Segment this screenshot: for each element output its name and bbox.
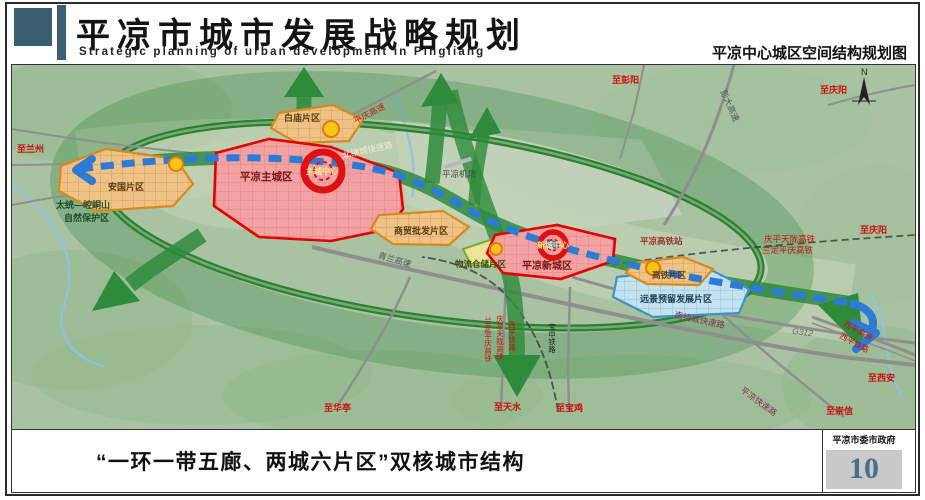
agency-cell: 平凉市委市政府 10 <box>822 430 905 492</box>
map-label: 至天水 <box>494 401 522 412</box>
zone-label-yuanjing: 远景预留发展片区 <box>640 293 712 304</box>
map-label: 至庆阳 <box>860 224 887 235</box>
header-bar-decoration <box>57 5 66 60</box>
map-label: 至西安 <box>868 372 895 383</box>
zone-label-main-city: 平凉主城区 <box>240 170 293 183</box>
zone-label-baimiao: 白庙片区 <box>284 112 320 123</box>
agency-name: 平凉市委市政府 <box>823 433 905 446</box>
zone-label-shangmao: 商贸批发片区 <box>394 225 448 236</box>
planning-map: N 至兰州 太统—崆峒山 自然保护区 安国片区 白庙片区 平凉主城区 主城中心 … <box>11 64 916 430</box>
map-canvas: N 至兰州 太统—崆峒山 自然保护区 安国片区 白庙片区 平凉主城区 主城中心 … <box>12 65 915 429</box>
map-label: 太统—崆峒山 <box>55 199 110 210</box>
map-label: 至华亭 <box>324 402 351 413</box>
map-label: 至兰州 <box>17 143 44 154</box>
page: 平凉市城市发展战略规划 Strategic planning of urban … <box>0 0 925 500</box>
map-label: 至宝鸡 <box>556 402 583 413</box>
map-title: 平凉中心城区空间结构规划图 <box>712 42 907 63</box>
footer-strip: “一环一带五廊、两城六片区”双核城市结构 平凉市委市政府 10 <box>11 430 916 493</box>
map-label: 至彭阳 <box>612 74 639 85</box>
zone-label-new-city: 平凉新城区 <box>522 259 572 272</box>
map-label: 平凉机场 <box>442 169 476 179</box>
map-label: G312 <box>792 326 814 338</box>
core-label-main: 主城中心 <box>306 166 338 176</box>
page-number: 10 <box>849 452 879 486</box>
zone-label-gaotie: 高铁片区 <box>652 270 687 280</box>
page-number-box: 10 <box>826 450 902 489</box>
core-label-new: 新城中心 <box>537 240 569 250</box>
map-label: 平凉高铁站 <box>640 236 683 246</box>
map-label: 至庆阳 <box>820 84 847 95</box>
page-subtitle: Strategic planning of urban development … <box>79 46 485 58</box>
north-label: N <box>861 67 868 77</box>
map-label: 宝中铁路 <box>547 322 556 354</box>
map-label: 至崇信 <box>826 405 853 416</box>
map-label: 自然保护区 <box>64 212 109 223</box>
header-square-decoration <box>14 8 52 46</box>
map-label: 庆平天陇高铁 <box>495 314 504 362</box>
map-label: 庆平天陇高铁 <box>764 234 816 244</box>
map-caption: “一环一带五廊、两城六片区”双核城市结构 <box>96 446 525 476</box>
map-label: 兰定平庆高铁 <box>762 245 814 255</box>
zone-label-wuliu: 物流仓储片区 <box>455 259 507 269</box>
map-label: 兰定平庆高铁 <box>483 316 492 364</box>
map-label: 西平铁路 <box>507 321 516 352</box>
zone-label-anguo: 安国片区 <box>108 181 144 192</box>
